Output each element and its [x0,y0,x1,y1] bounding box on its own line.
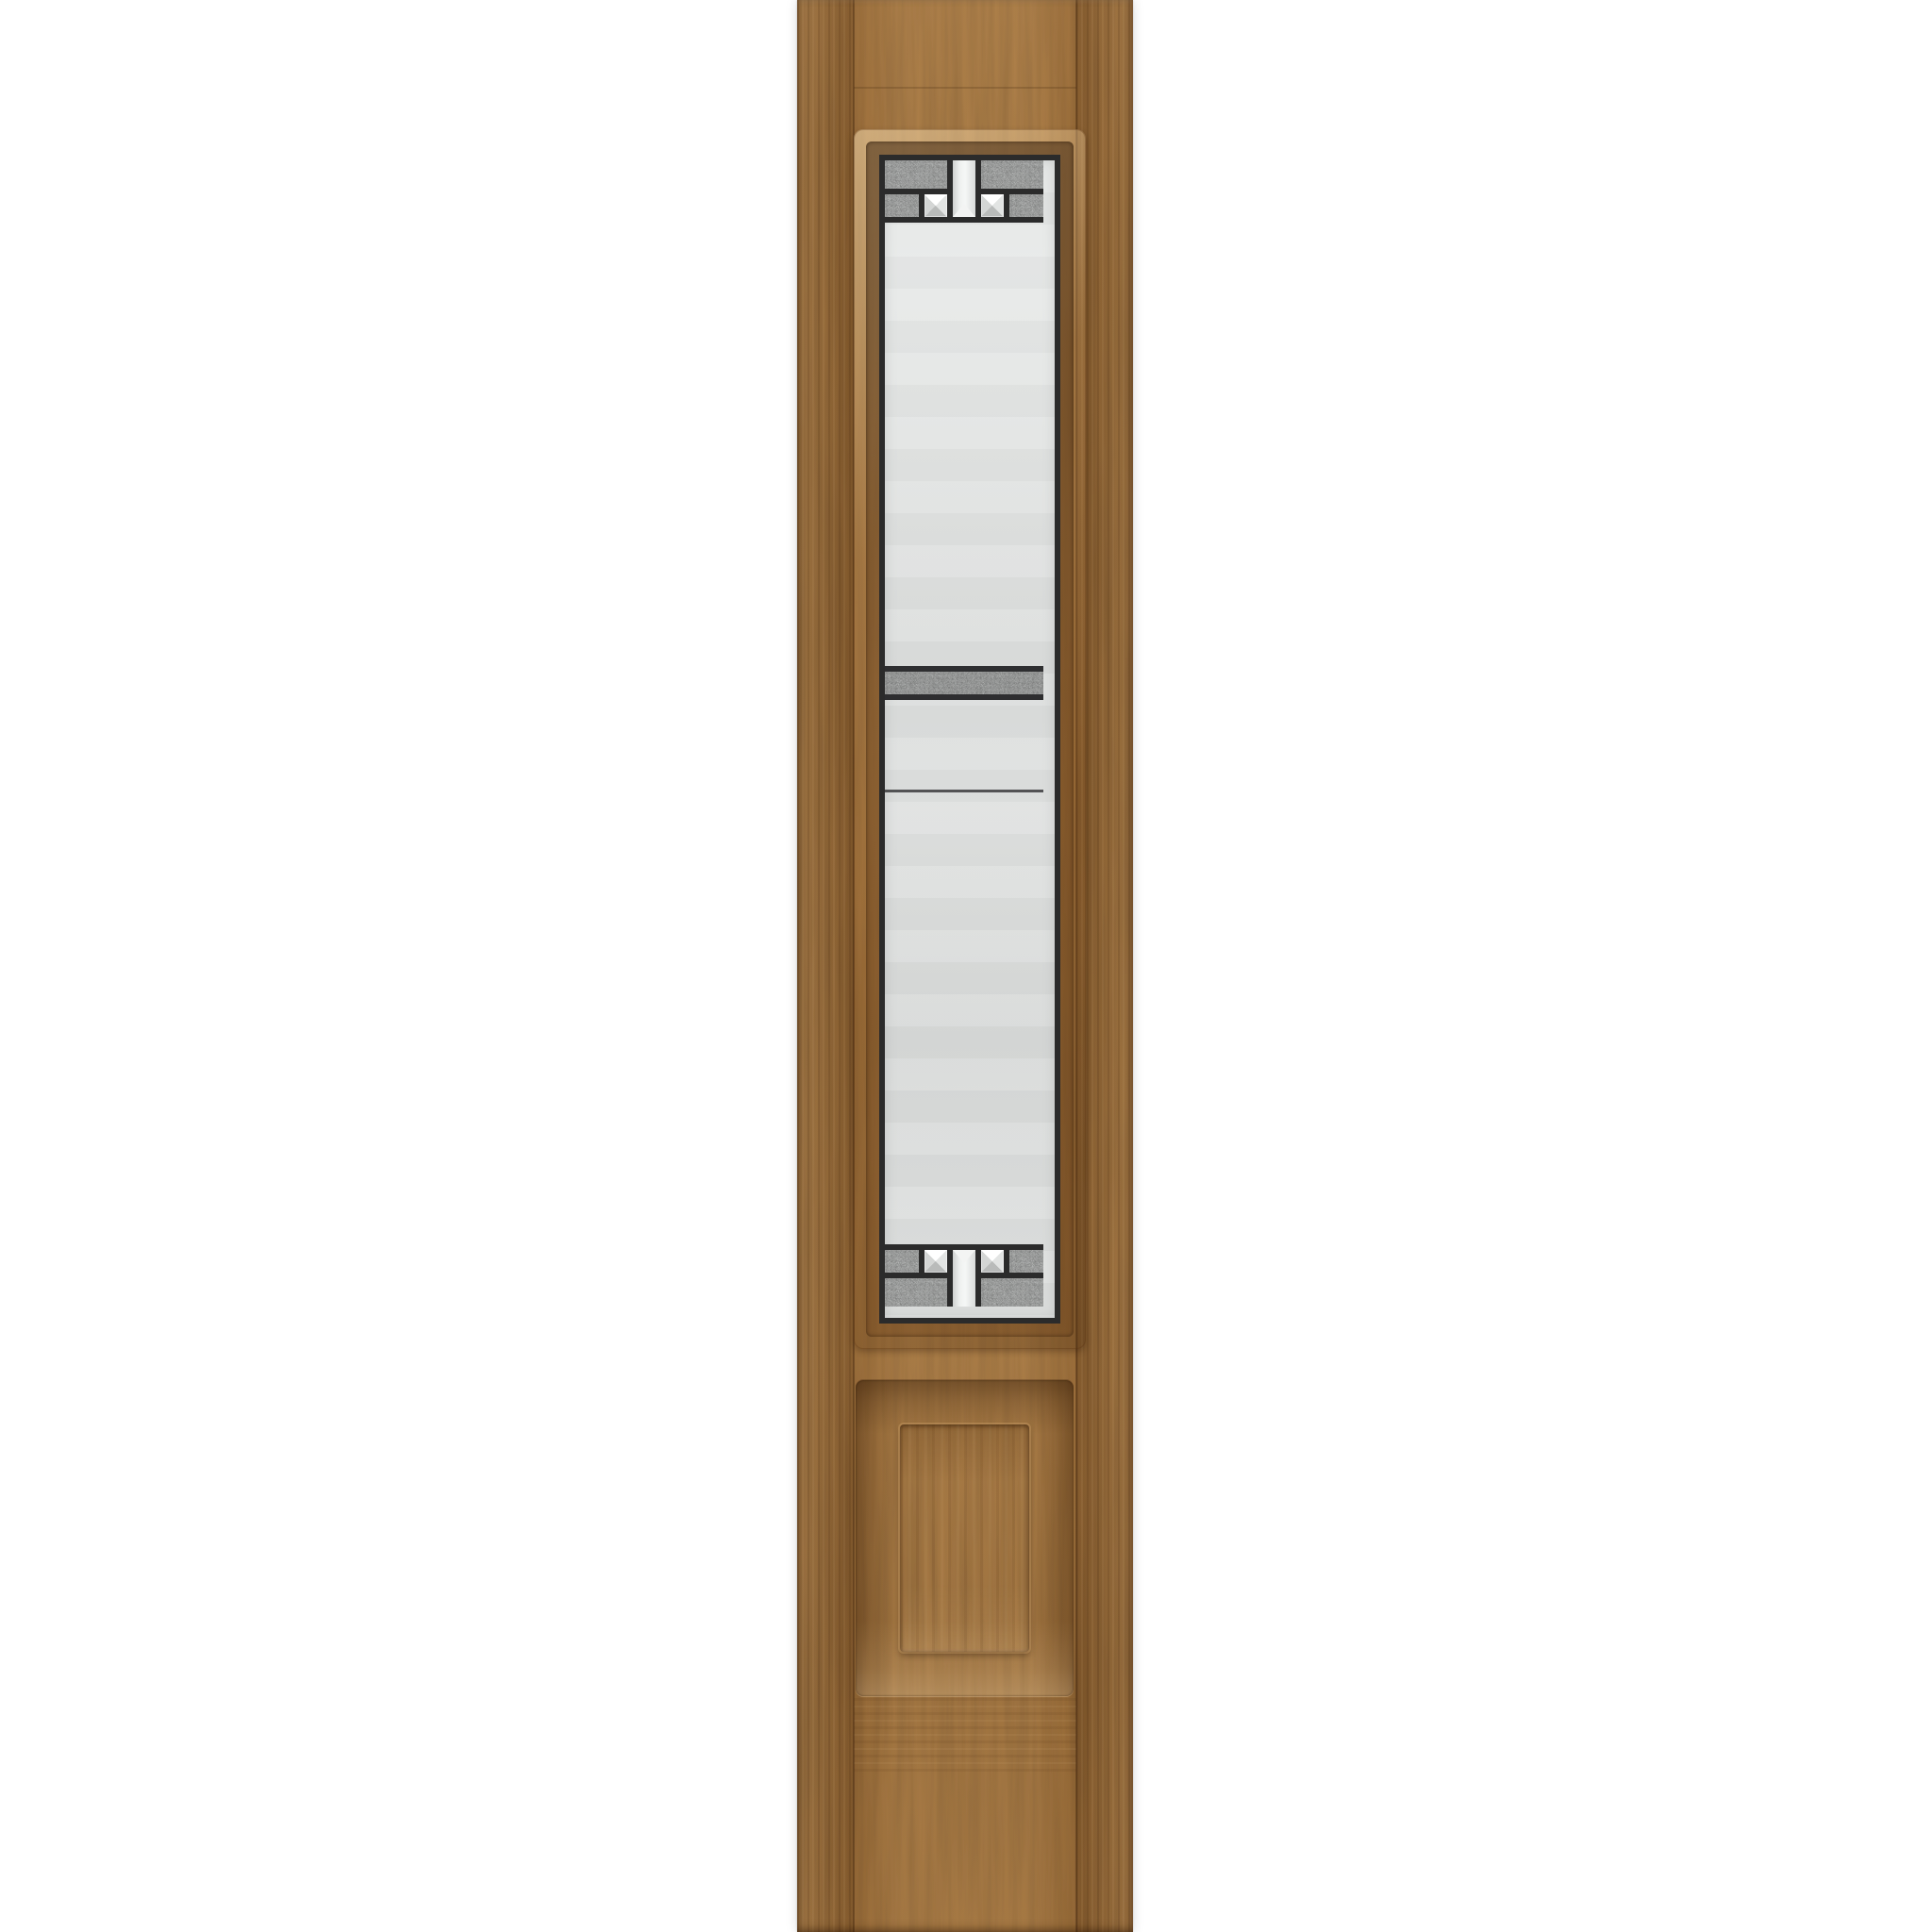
glass-frame-bevel [866,142,1074,1337]
raised-panel-field [900,1424,1029,1652]
bevel-chevron [953,1250,975,1263]
textured-glass-block [885,1278,947,1307]
left-stile [797,0,854,1932]
glass-bottom-band [885,1244,1043,1307]
sidelight-door [797,0,1133,1932]
textured-glass-block [981,1278,1043,1307]
bevel-glass-square [981,194,1004,217]
textured-glass-block [885,160,947,189]
bevel-glass-column [953,160,975,217]
textured-glass-block [981,160,1043,189]
bevel-chevron [953,204,975,217]
caming-line [885,694,1043,700]
top-rail-seam [854,87,1076,89]
bottom-rail-grain [854,1698,1076,1775]
granite-glass-band [885,672,1043,694]
textured-glass-block [885,194,919,217]
product-photo-canvas [0,0,1932,1932]
thin-caming-line [885,790,1043,792]
textured-glass-block [885,1250,919,1273]
textured-glass-block [1009,194,1043,217]
glass-frame-moulding [854,129,1086,1349]
decorative-glass-panel [879,155,1060,1324]
glass-top-band [885,160,1043,223]
bevel-glass-square [924,194,947,217]
textured-glass-block [1009,1250,1043,1273]
bevel-glass-square [924,1250,947,1273]
bevel-glass-column [953,1250,975,1307]
bevel-glass-square [981,1250,1004,1273]
raised-panel-recess [856,1380,1074,1696]
